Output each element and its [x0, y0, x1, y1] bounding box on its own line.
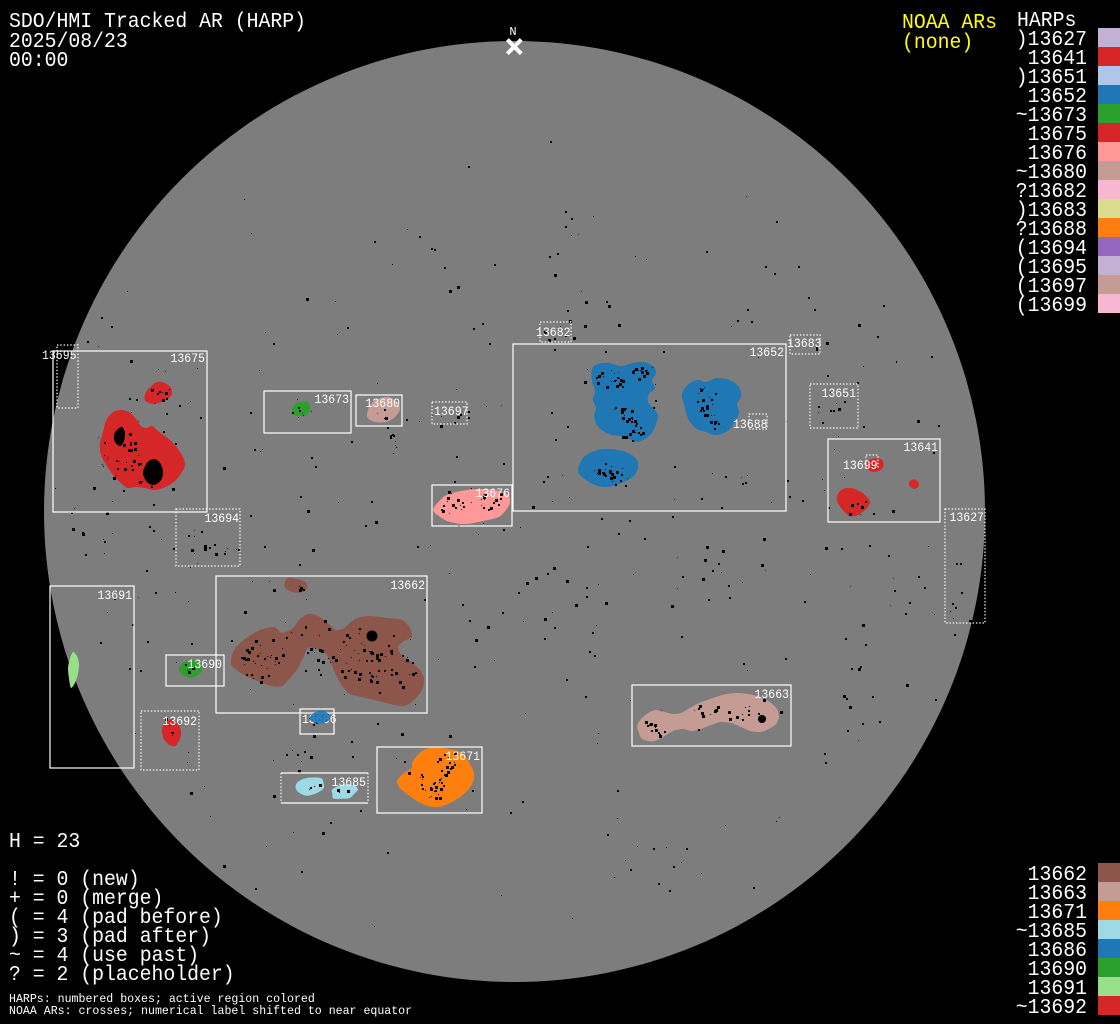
svg-text:~13692: ~13692: [1016, 997, 1087, 1020]
svg-text:13680: 13680: [366, 396, 401, 411]
svg-text:13662: 13662: [391, 578, 426, 593]
svg-text:13685: 13685: [332, 775, 367, 790]
svg-text:13676: 13676: [476, 486, 511, 501]
svg-text:(none): (none): [902, 32, 973, 55]
svg-text:13663: 13663: [755, 687, 790, 702]
svg-text:13682: 13682: [536, 325, 571, 340]
svg-text:NOAA ARs: crosses; numerical l: NOAA ARs: crosses; numerical label shift…: [9, 1004, 412, 1018]
svg-text:? = 2 (placeholder): ? = 2 (placeholder): [9, 964, 235, 987]
svg-text:13627: 13627: [950, 510, 985, 525]
svg-text:13697: 13697: [434, 404, 469, 419]
svg-text:13641: 13641: [904, 440, 939, 455]
svg-text:13691: 13691: [98, 588, 133, 603]
svg-text:(13699: (13699: [1016, 295, 1087, 318]
svg-text:13694: 13694: [205, 511, 240, 526]
svg-text:13688: 13688: [733, 417, 768, 432]
svg-text:13692: 13692: [163, 714, 198, 729]
svg-text:N: N: [509, 25, 516, 39]
svg-text:13699: 13699: [843, 458, 878, 473]
svg-text:13675: 13675: [171, 351, 206, 366]
svg-text:13652: 13652: [750, 345, 785, 360]
svg-text:13683: 13683: [787, 336, 822, 351]
svg-text:13690: 13690: [188, 657, 223, 672]
svg-text:13671: 13671: [446, 749, 481, 764]
svg-text:13673: 13673: [315, 392, 350, 407]
svg-text:00:00: 00:00: [9, 50, 68, 73]
svg-text:13695: 13695: [42, 348, 77, 363]
svg-text:13651: 13651: [822, 386, 857, 401]
svg-text:H = 23: H = 23: [9, 831, 80, 854]
